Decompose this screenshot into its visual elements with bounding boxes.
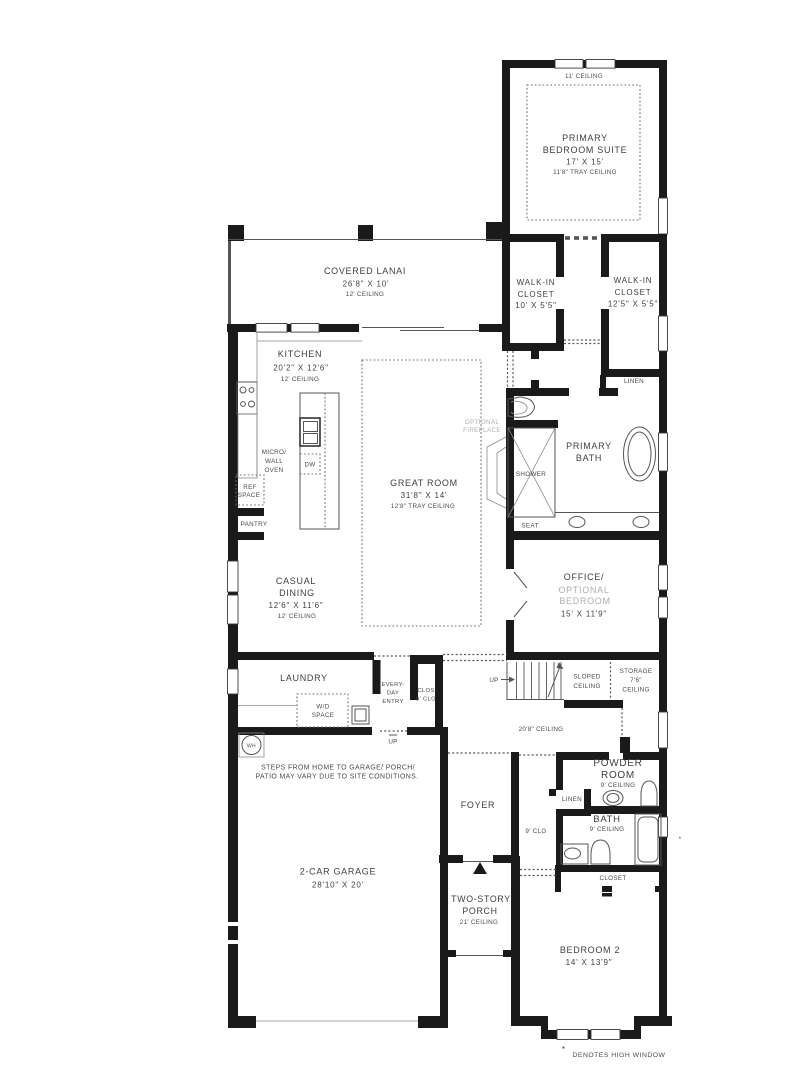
svg-text:26'8" X 10': 26'8" X 10' [343, 280, 390, 289]
svg-text:SHOWER: SHOWER [516, 471, 546, 478]
svg-text:OPTIONAL: OPTIONAL [465, 419, 499, 426]
svg-text:UP: UP [489, 677, 498, 684]
svg-text:9' CEILING: 9' CEILING [590, 826, 625, 833]
svg-text:REF: REF [243, 484, 257, 491]
svg-text:FOYER: FOYER [461, 800, 496, 810]
svg-text:11'8" TRAY CEILING: 11'8" TRAY CEILING [553, 169, 617, 176]
svg-text:CLOSET: CLOSET [518, 290, 555, 299]
svg-text:PORCH: PORCH [462, 906, 497, 916]
svg-text:CASUAL: CASUAL [276, 576, 316, 586]
svg-text:12' CEILING: 12' CEILING [281, 376, 319, 383]
svg-text:WH: WH [247, 744, 256, 750]
svg-text:W/D: W/D [316, 704, 329, 711]
svg-text:BATH: BATH [593, 814, 620, 825]
svg-text:CEILING: CEILING [622, 687, 649, 694]
svg-text:PRIMARY: PRIMARY [562, 133, 608, 143]
svg-text:GREAT ROOM: GREAT ROOM [390, 478, 458, 488]
svg-text:STEPS FROM HOME TO GARAGE/ POR: STEPS FROM HOME TO GARAGE/ PORCH/ [261, 765, 415, 772]
svg-text:12'5" X 5'5": 12'5" X 5'5" [608, 300, 658, 309]
svg-text:DW: DW [304, 462, 315, 469]
svg-text:FIREPLACE: FIREPLACE [463, 427, 501, 434]
svg-text:LINEN: LINEN [562, 796, 582, 803]
svg-text:WALK-IN: WALK-IN [614, 276, 653, 285]
svg-text:12'6" X 11'6": 12'6" X 11'6" [268, 601, 323, 610]
svg-text:ROOM: ROOM [601, 770, 635, 781]
svg-text:LINEN: LINEN [624, 378, 644, 385]
svg-text:PATIO MAY VARY DUE TO SITE CON: PATIO MAY VARY DUE TO SITE CONDITIONS. [256, 774, 419, 781]
svg-text:9' CEILING: 9' CEILING [601, 782, 636, 789]
svg-text:WALK-IN: WALK-IN [517, 278, 556, 287]
svg-text:CLOS: CLOS [417, 688, 434, 694]
svg-text:CLOSET: CLOSET [600, 875, 627, 882]
svg-text:28'10" X 20': 28'10" X 20' [312, 881, 364, 890]
svg-text:UP: UP [388, 739, 397, 746]
svg-text:12'8" TRAY CEILING: 12'8" TRAY CEILING [391, 503, 455, 510]
svg-text:*: * [562, 1045, 566, 1054]
svg-text:*: * [679, 836, 682, 843]
svg-text:SPACE: SPACE [238, 492, 260, 499]
svg-text:12' CEILING: 12' CEILING [278, 613, 316, 620]
svg-text:CEILING: CEILING [573, 683, 600, 690]
svg-text:9' CLG: 9' CLG [416, 697, 436, 703]
svg-text:DENOTES HIGH WINDOW: DENOTES HIGH WINDOW [573, 1052, 666, 1059]
svg-text:DAY: DAY [387, 691, 400, 697]
svg-text:COVERED LANAI: COVERED LANAI [324, 266, 406, 276]
svg-text:MICRO/: MICRO/ [262, 449, 287, 456]
svg-text:TWO-STORY: TWO-STORY [451, 894, 511, 904]
svg-text:OPTIONAL: OPTIONAL [558, 585, 609, 595]
svg-text:SPACE: SPACE [312, 712, 334, 719]
svg-text:7'6": 7'6" [630, 677, 642, 684]
svg-text:STORAGE: STORAGE [620, 668, 653, 675]
svg-text:17' X 15': 17' X 15' [566, 158, 604, 167]
svg-text:EVERY-: EVERY- [381, 682, 404, 688]
svg-text:WALL: WALL [265, 458, 283, 465]
svg-text:CLOSET: CLOSET [615, 288, 652, 297]
svg-text:SEAT: SEAT [521, 523, 538, 530]
svg-text:PRIMARY: PRIMARY [566, 441, 612, 451]
svg-text:9' CLG: 9' CLG [525, 828, 546, 835]
svg-text:OVEN: OVEN [264, 467, 283, 474]
svg-text:11' CEILING: 11' CEILING [565, 73, 603, 80]
svg-text:KITCHEN: KITCHEN [278, 349, 322, 359]
svg-text:ENTRY: ENTRY [382, 699, 403, 705]
svg-text:21' CEILING: 21' CEILING [460, 919, 498, 926]
svg-text:15' X 11'9": 15' X 11'9" [561, 610, 607, 619]
svg-text:DINING: DINING [279, 588, 315, 598]
svg-text:POWDER: POWDER [593, 758, 642, 769]
svg-text:BATH: BATH [576, 453, 602, 463]
svg-text:10' X 5'5": 10' X 5'5" [515, 301, 556, 310]
svg-text:20'2" X 12'6": 20'2" X 12'6" [273, 364, 329, 373]
svg-text:2-CAR GARAGE: 2-CAR GARAGE [300, 867, 376, 877]
svg-text:BEDROOM 2: BEDROOM 2 [560, 945, 620, 955]
svg-text:20'8" CEILING: 20'8" CEILING [519, 726, 564, 733]
svg-text:14' X 13'9": 14' X 13'9" [566, 958, 613, 967]
svg-text:SLOPED: SLOPED [573, 674, 600, 681]
svg-text:31'8" X 14': 31'8" X 14' [401, 491, 448, 500]
svg-text:BEDROOM: BEDROOM [559, 596, 610, 606]
svg-text:12' CEILING: 12' CEILING [346, 291, 384, 298]
svg-text:BEDROOM SUITE: BEDROOM SUITE [543, 145, 628, 155]
svg-text:PANTRY: PANTRY [241, 521, 268, 528]
svg-text:LAUNDRY: LAUNDRY [280, 673, 328, 683]
svg-text:OFFICE/: OFFICE/ [564, 572, 604, 582]
